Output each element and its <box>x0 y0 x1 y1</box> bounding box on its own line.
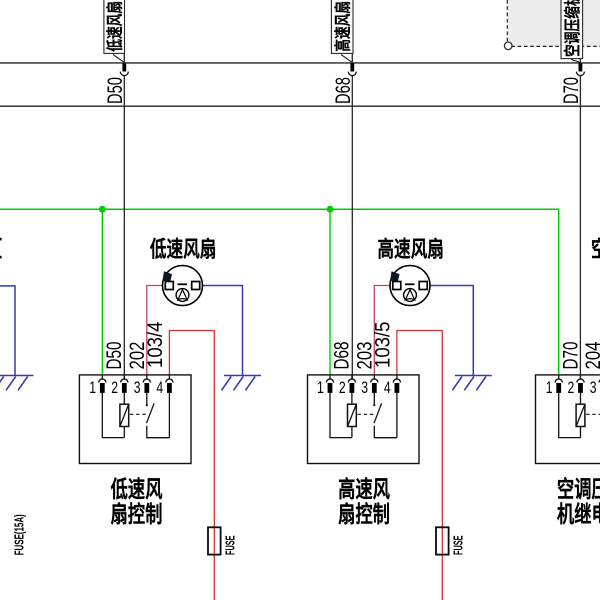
svg-text:2: 2 <box>111 379 118 397</box>
svg-text:3: 3 <box>361 379 368 397</box>
svg-text:FUSE(15A): FUSE(15A) <box>13 514 27 555</box>
svg-text:3: 3 <box>590 379 597 397</box>
svg-text:D68: D68 <box>331 342 354 370</box>
svg-text:2: 2 <box>339 379 346 397</box>
svg-text:4: 4 <box>156 379 163 397</box>
svg-text:FUSE: FUSE <box>451 536 465 556</box>
svg-text:3: 3 <box>134 379 141 397</box>
svg-text:D68: D68 <box>332 77 355 104</box>
svg-text:1: 1 <box>89 379 96 397</box>
svg-text:1: 1 <box>546 379 553 397</box>
svg-text:FUSE: FUSE <box>223 536 237 556</box>
svg-text:103/4: 103/4 <box>144 321 167 368</box>
svg-text:103/5: 103/5 <box>372 322 395 369</box>
svg-text:204: 204 <box>582 341 600 369</box>
svg-text:D50: D50 <box>103 342 126 370</box>
svg-text:D70: D70 <box>560 77 583 104</box>
svg-text:1: 1 <box>317 379 324 397</box>
svg-text:D50: D50 <box>104 77 127 104</box>
svg-text:2: 2 <box>568 379 575 397</box>
svg-text:4: 4 <box>384 379 391 397</box>
svg-text:D70: D70 <box>559 342 582 370</box>
